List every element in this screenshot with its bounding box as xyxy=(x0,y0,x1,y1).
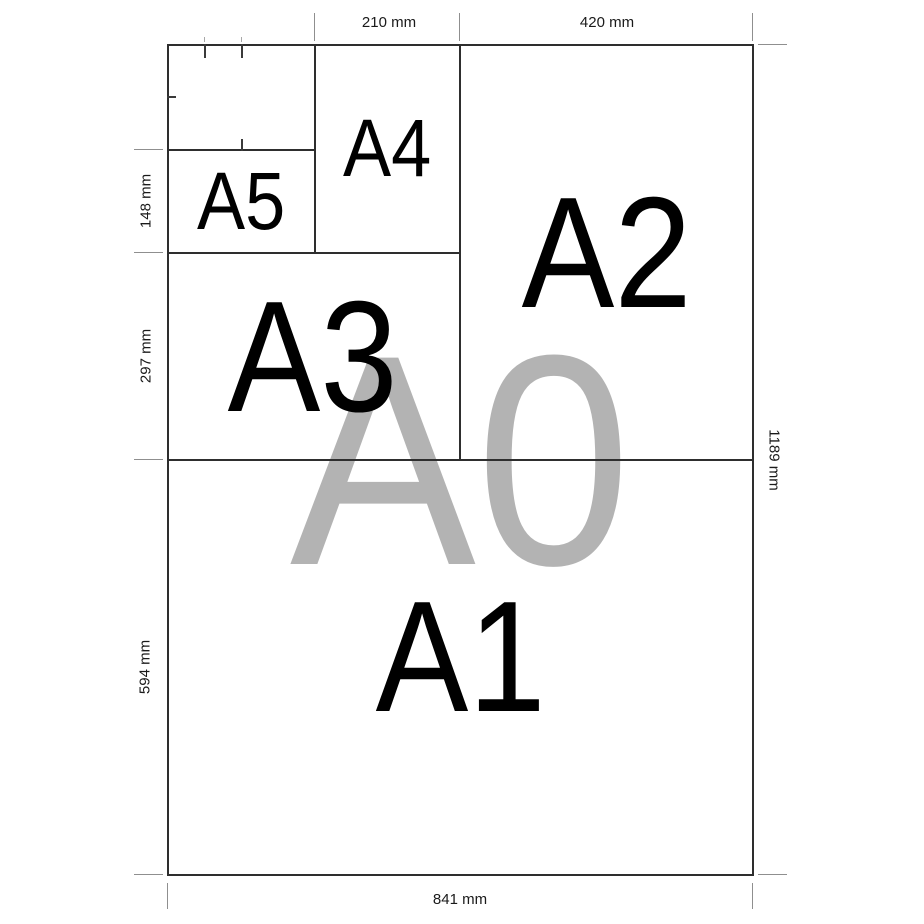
extension-tick-top-1 xyxy=(314,13,315,41)
panel-a4-label: A4 xyxy=(343,108,431,190)
dimension-label-297mm: 297 mm xyxy=(139,329,154,383)
panel-a2-label: A2 xyxy=(522,174,692,332)
dimension-label-148mm: 148 mm xyxy=(139,174,154,228)
extension-tick-bottom-1 xyxy=(167,883,168,909)
fold-tick-left-inner xyxy=(167,96,176,98)
fold-tick-top-inner-2 xyxy=(241,44,243,58)
dimension-label-420mm: 420 mm xyxy=(576,15,638,30)
panel-a5-label: A5 xyxy=(197,161,285,243)
panel-a1: A1 xyxy=(167,461,754,853)
extension-tick-right-2 xyxy=(758,874,787,875)
fold-mark-above-border-1 xyxy=(204,37,205,42)
extension-tick-right-1 xyxy=(758,44,787,45)
extension-tick-top-3 xyxy=(752,13,753,41)
extension-tick-top-2 xyxy=(459,13,460,41)
panel-a4: A4 xyxy=(315,46,459,252)
panel-a2: A2 xyxy=(461,46,753,459)
panel-a3: A3 xyxy=(167,254,459,459)
dimension-label-210mm: 210 mm xyxy=(359,15,419,30)
fold-tick-top-inner-1 xyxy=(204,44,206,58)
extension-tick-left-4 xyxy=(134,874,163,875)
extension-tick-left-1 xyxy=(134,149,163,150)
fold-mark-above-border-2 xyxy=(241,37,242,42)
dimension-label-1189mm: 1189 mm xyxy=(767,429,782,490)
extension-tick-left-2 xyxy=(134,252,163,253)
fold-tick-bottom-inner xyxy=(241,139,243,151)
dimension-label-841mm: 841 mm xyxy=(425,892,495,907)
extension-tick-left-3 xyxy=(134,459,163,460)
dimension-label-594mm: 594 mm xyxy=(138,640,153,694)
panel-a5: A5 xyxy=(167,151,315,252)
extension-tick-bottom-2 xyxy=(752,883,753,909)
paper-size-diagram: A0 A5 A4 A3 A2 A1 210 mm 420 mm 148 mm 2… xyxy=(0,0,924,924)
panel-a1-label: A1 xyxy=(375,578,545,736)
panel-a3-label: A3 xyxy=(228,278,398,436)
